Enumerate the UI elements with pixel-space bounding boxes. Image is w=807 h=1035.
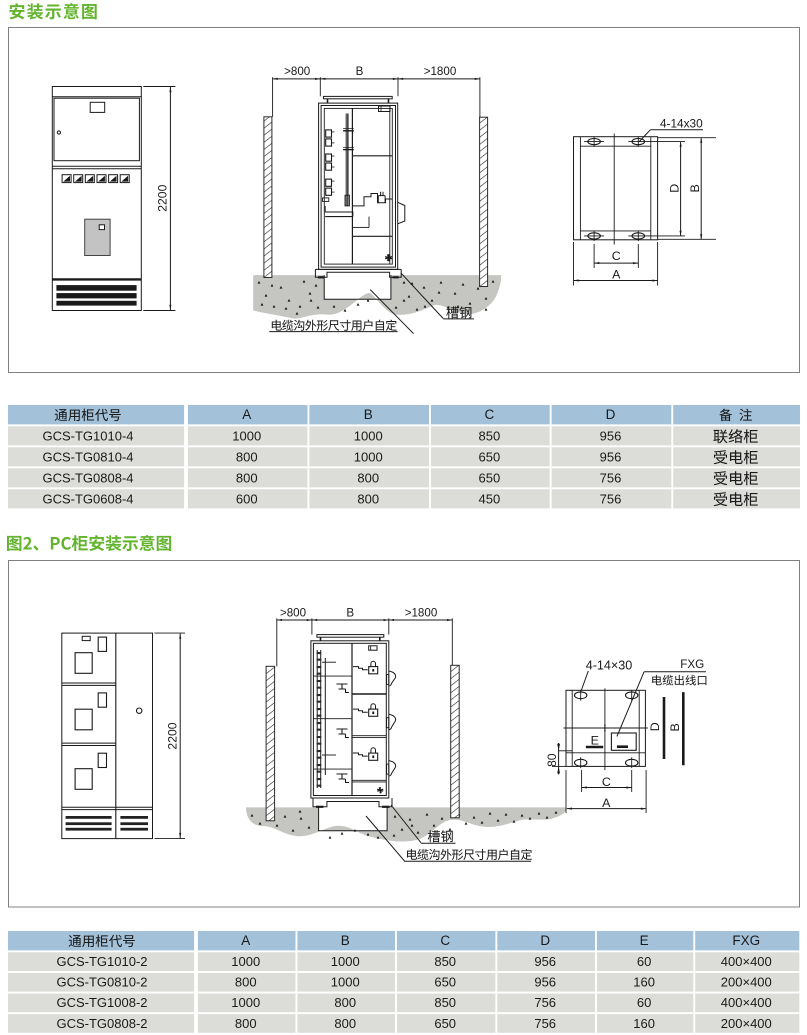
- svg-text:800: 800: [235, 975, 257, 990]
- svg-text:GCS-TG1010-4: GCS-TG1010-4: [42, 428, 133, 443]
- svg-text:1000: 1000: [331, 975, 360, 990]
- svg-text:60: 60: [637, 954, 651, 969]
- svg-text:FXG: FXG: [680, 658, 704, 671]
- svg-text:650: 650: [478, 449, 500, 464]
- svg-text:4-14×30: 4-14×30: [586, 658, 633, 672]
- svg-text:756: 756: [600, 470, 622, 485]
- svg-text:A: A: [602, 796, 611, 810]
- svg-text:60: 60: [637, 995, 651, 1010]
- svg-text:B: B: [341, 933, 350, 948]
- svg-text:>1800: >1800: [424, 65, 457, 78]
- svg-text:1000: 1000: [354, 449, 383, 464]
- svg-text:C: C: [440, 933, 450, 948]
- svg-text:160: 160: [633, 1016, 655, 1031]
- svg-text:B: B: [356, 65, 364, 78]
- svg-text:GCS-TG1008-2: GCS-TG1008-2: [56, 995, 147, 1010]
- svg-text:A: A: [241, 933, 250, 948]
- svg-text:2200: 2200: [156, 184, 170, 211]
- svg-text:1000: 1000: [232, 428, 261, 443]
- svg-text:756: 756: [534, 1016, 556, 1031]
- svg-text:2200: 2200: [165, 722, 179, 749]
- svg-text:C: C: [612, 249, 621, 263]
- svg-text:B: B: [668, 723, 682, 731]
- svg-text:E: E: [640, 933, 649, 948]
- svg-text:GCS-TG0810-2: GCS-TG0810-2: [56, 975, 147, 990]
- svg-text:>1800: >1800: [405, 606, 438, 619]
- svg-text:80: 80: [545, 753, 559, 767]
- svg-text:D: D: [667, 184, 681, 193]
- svg-text:956: 956: [600, 428, 622, 443]
- svg-text:850: 850: [478, 428, 500, 443]
- svg-text:800: 800: [235, 1016, 257, 1031]
- svg-text:GCS-TG0608-4: GCS-TG0608-4: [42, 491, 133, 506]
- svg-text:160: 160: [633, 975, 655, 990]
- svg-text:GCS-TG1010-2: GCS-TG1010-2: [56, 954, 147, 969]
- svg-text:GCS-TG0808-4: GCS-TG0808-4: [42, 470, 133, 485]
- svg-text:C: C: [602, 775, 611, 789]
- svg-text:GCS-TG0810-4: GCS-TG0810-4: [42, 449, 133, 464]
- svg-text:800: 800: [334, 995, 356, 1010]
- svg-text:450: 450: [478, 491, 500, 506]
- svg-text:800: 800: [236, 449, 258, 464]
- svg-text:4-14x30: 4-14x30: [660, 116, 703, 130]
- svg-text:B: B: [346, 606, 354, 619]
- svg-text:D: D: [648, 722, 662, 731]
- svg-text:>800: >800: [280, 606, 306, 619]
- svg-text:400×400: 400×400: [721, 954, 772, 969]
- svg-text:850: 850: [434, 995, 456, 1010]
- svg-text:956: 956: [534, 954, 556, 969]
- svg-text:1000: 1000: [331, 954, 360, 969]
- svg-text:A: A: [612, 267, 621, 281]
- svg-text:650: 650: [434, 1016, 456, 1031]
- svg-text:800: 800: [334, 1016, 356, 1031]
- svg-text:>800: >800: [284, 65, 310, 78]
- svg-text:800: 800: [357, 470, 379, 485]
- svg-text:C: C: [484, 407, 494, 422]
- svg-text:GCS-TG0808-2: GCS-TG0808-2: [56, 1016, 147, 1031]
- svg-text:B: B: [688, 184, 702, 192]
- svg-text:200×400: 200×400: [721, 975, 772, 990]
- svg-text:1000: 1000: [354, 428, 383, 443]
- svg-text:956: 956: [534, 975, 556, 990]
- svg-text:B: B: [364, 407, 373, 422]
- svg-text:400×400: 400×400: [721, 995, 772, 1010]
- svg-text:D: D: [540, 933, 550, 948]
- svg-text:800: 800: [357, 491, 379, 506]
- svg-text:800: 800: [236, 470, 258, 485]
- svg-text:956: 956: [600, 449, 622, 464]
- svg-text:600: 600: [236, 491, 258, 506]
- svg-text:D: D: [606, 407, 616, 422]
- svg-text:200×400: 200×400: [721, 1016, 772, 1031]
- svg-text:756: 756: [534, 995, 556, 1010]
- svg-text:A: A: [242, 407, 251, 422]
- svg-text:650: 650: [434, 975, 456, 990]
- svg-text:850: 850: [434, 954, 456, 969]
- svg-text:1000: 1000: [231, 954, 260, 969]
- svg-text:FXG: FXG: [732, 933, 760, 948]
- svg-text:650: 650: [478, 470, 500, 485]
- svg-text:756: 756: [600, 491, 622, 506]
- svg-text:1000: 1000: [231, 995, 260, 1010]
- svg-text:E: E: [591, 734, 599, 748]
